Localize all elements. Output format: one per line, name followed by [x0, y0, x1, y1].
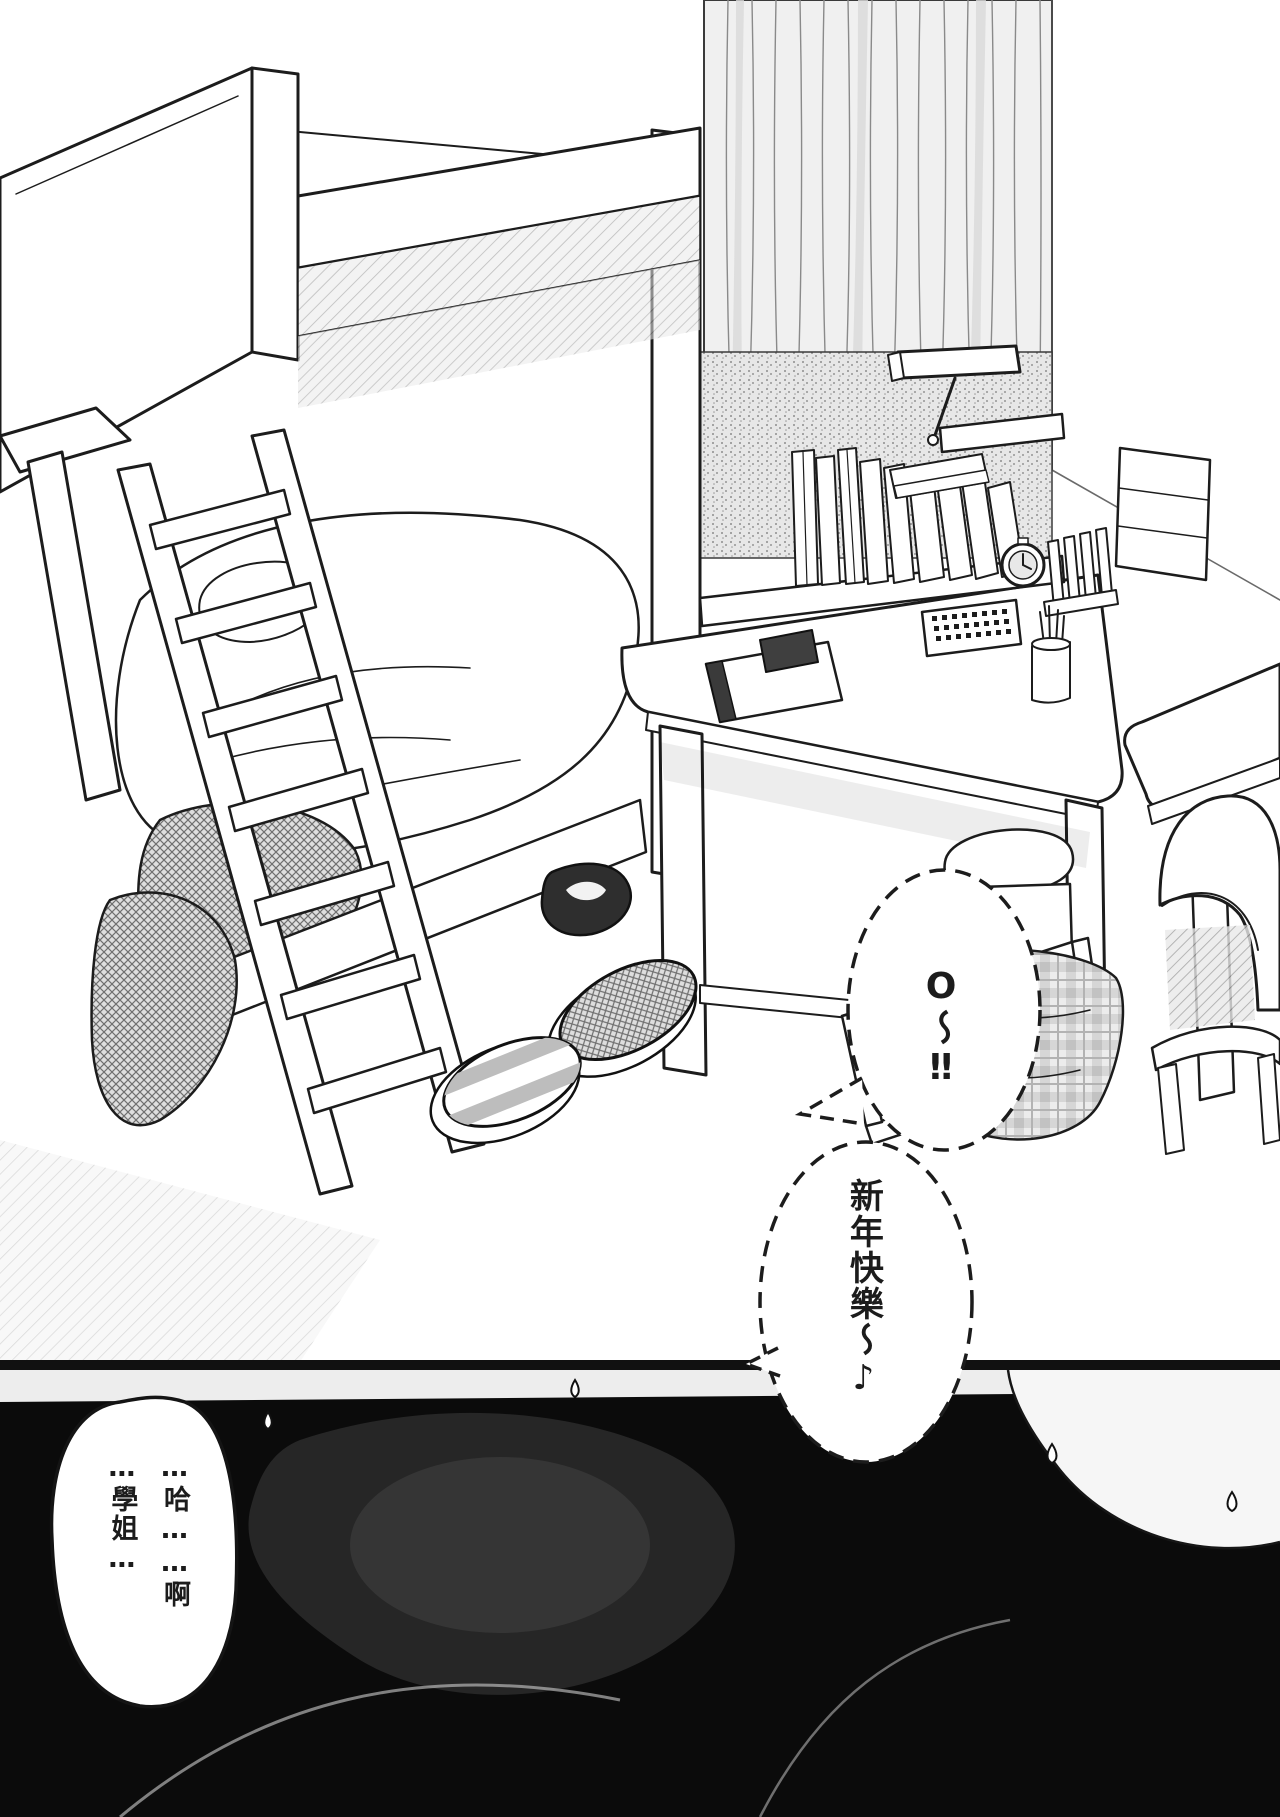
abstract-form	[350, 1457, 650, 1633]
letter-rack	[1044, 528, 1118, 616]
clothes-pile	[92, 893, 237, 1126]
drawer-unit	[1116, 448, 1210, 580]
bed-front-post	[252, 68, 298, 360]
ladder-side-rail	[28, 452, 120, 800]
panel-border	[0, 1360, 1280, 1370]
dialogue-exclaim: O〜‼	[921, 966, 961, 1090]
chair-shadow	[1165, 925, 1255, 1030]
chair-leg	[1258, 1054, 1280, 1144]
lamp-joint	[928, 435, 938, 445]
lamp-cap	[888, 352, 904, 381]
panel-room-scene	[0, 0, 1280, 1362]
dialogue-greeting: 新年快樂〜♪	[844, 1178, 881, 1400]
dialogue-gasp: …哈……啊 …學姐…	[96, 1452, 200, 1609]
manga-page: O〜‼ 新年快樂〜♪ …哈……啊 …學姐…	[0, 0, 1280, 1817]
chair-leg	[1158, 1064, 1184, 1154]
curtain-fabric	[704, 0, 1052, 401]
lamp-head	[898, 346, 1020, 378]
bunk-bed	[0, 68, 700, 1125]
rounded-chair	[1152, 796, 1280, 1154]
